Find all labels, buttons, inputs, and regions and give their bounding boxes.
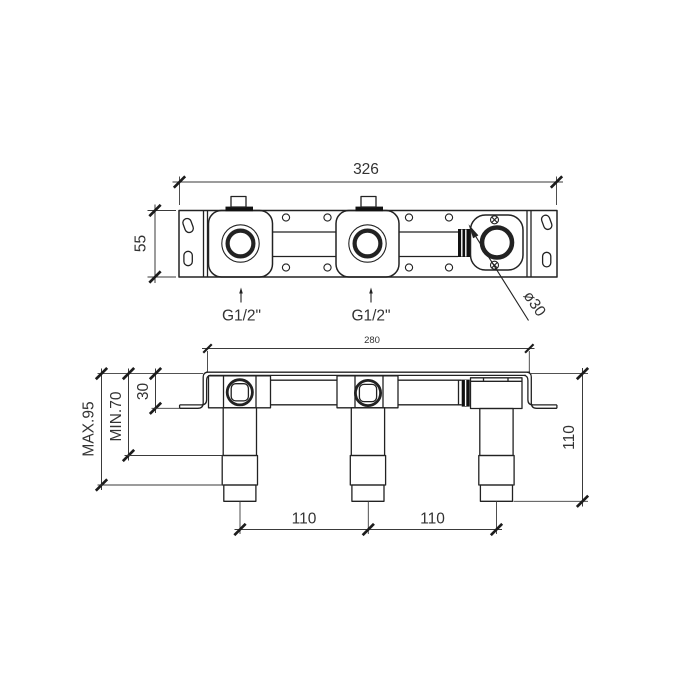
front-outlet-block xyxy=(471,378,523,409)
front-valve-left-body xyxy=(223,408,256,456)
slot-right-lower xyxy=(543,252,551,267)
valve-body-left xyxy=(209,197,273,278)
valve-center-cap xyxy=(361,197,376,208)
front-seal-bar xyxy=(462,380,470,407)
dim-overall-height: 55 xyxy=(133,205,177,284)
mounting-plate xyxy=(179,211,557,278)
port-label-left: G1/2" xyxy=(222,308,261,325)
plate-hole xyxy=(282,214,289,221)
front-valve-left xyxy=(209,376,271,502)
port-arrowhead-center xyxy=(369,288,373,294)
dim-326-label: 326 xyxy=(353,161,379,178)
plate-hole xyxy=(405,264,412,271)
dim-110-right-label: 110 xyxy=(420,511,445,528)
dim-110-left-label: 110 xyxy=(292,511,317,528)
plate-hole xyxy=(282,264,289,271)
slot-left-upper xyxy=(182,217,195,233)
front-outlet-right xyxy=(471,378,523,502)
front-valve-center xyxy=(337,376,398,502)
outlet-body-right xyxy=(471,215,524,270)
dim-30-label: 30 xyxy=(135,383,152,401)
valve-body-center xyxy=(336,197,399,278)
valve-installation-drawing: 326 55 G1/2" G1/2" ø30 xyxy=(0,0,700,700)
plate-hole xyxy=(324,214,331,221)
valve-left-cap xyxy=(231,197,246,208)
front-valve-left-square xyxy=(231,384,248,401)
rail-flange-right-outer xyxy=(527,372,557,408)
plate-hole xyxy=(445,264,452,271)
front-outlet-body xyxy=(480,409,513,456)
plate-hole xyxy=(405,214,412,221)
front-valve-center-square xyxy=(359,384,376,401)
front-valve-center-tail xyxy=(352,485,384,501)
valve-center-port-ring xyxy=(355,231,381,257)
port-arrowhead-left xyxy=(239,288,243,294)
dim-overall-height-front: 110 xyxy=(514,368,589,507)
front-outlet-tail xyxy=(480,485,512,501)
front-valve-left-step xyxy=(222,456,257,486)
dim-min70-label: MIN.70 xyxy=(108,391,125,441)
slot-right-upper xyxy=(540,214,553,231)
dim-55-label: 55 xyxy=(133,235,150,252)
rail-flange-left-outer xyxy=(180,372,208,408)
dia-30-label: ø30 xyxy=(520,288,549,320)
dim-port-spacings: 110 110 xyxy=(234,501,502,535)
dim-280-label: 280 xyxy=(364,335,380,346)
connector-bars-top xyxy=(273,232,459,257)
plate-hole xyxy=(445,214,452,221)
port-label-center: G1/2" xyxy=(351,308,390,325)
slot-left-lower xyxy=(184,251,192,265)
plate-hole xyxy=(324,264,331,271)
rail-flange-right-inner xyxy=(524,375,557,405)
port-labels: G1/2" G1/2" xyxy=(222,288,391,325)
callout-leader-line xyxy=(476,237,529,321)
front-view: 280 MAX.95 MIN.70 30 xyxy=(81,335,589,535)
front-valve-left-tail xyxy=(224,485,256,501)
dim-depths-left: MAX.95 MIN.70 30 xyxy=(81,368,223,491)
seal-bar-top xyxy=(458,229,471,257)
front-outlet-step xyxy=(479,456,514,486)
dim-max95-label: MAX.95 xyxy=(81,401,98,456)
dim-110-height-label: 110 xyxy=(561,425,578,450)
valve-left-port-ring xyxy=(228,231,254,257)
front-valve-center-body xyxy=(351,408,384,456)
outlet-screw-top xyxy=(491,216,499,224)
front-valve-center-step xyxy=(350,456,385,486)
dim-body-width: 280 xyxy=(202,335,535,372)
rail-flange-left-inner xyxy=(180,375,211,405)
plate-outline xyxy=(179,211,557,278)
top-view: 326 55 G1/2" G1/2" ø30 xyxy=(133,161,564,325)
technical-drawing-page: 326 55 G1/2" G1/2" ø30 xyxy=(0,0,700,700)
